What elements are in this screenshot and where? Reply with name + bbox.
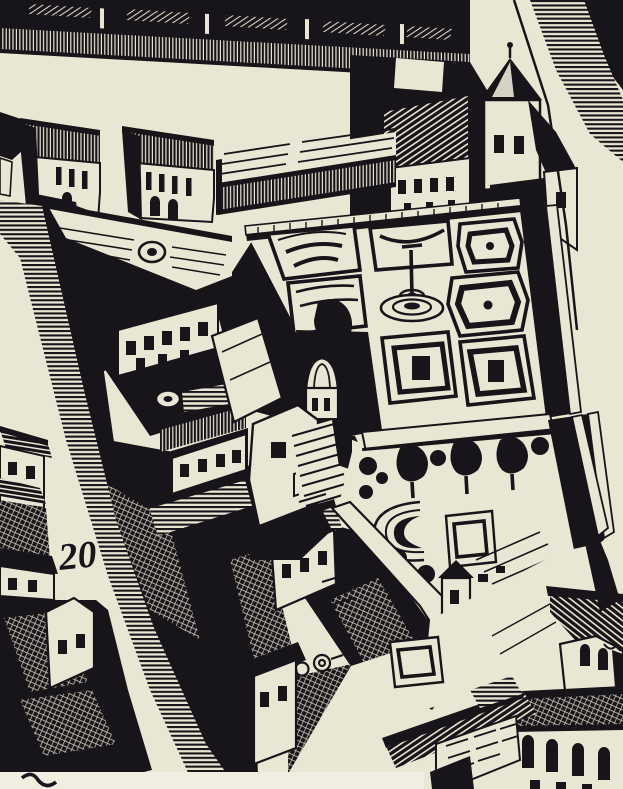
svg-text:20: 20 bbox=[56, 533, 99, 579]
